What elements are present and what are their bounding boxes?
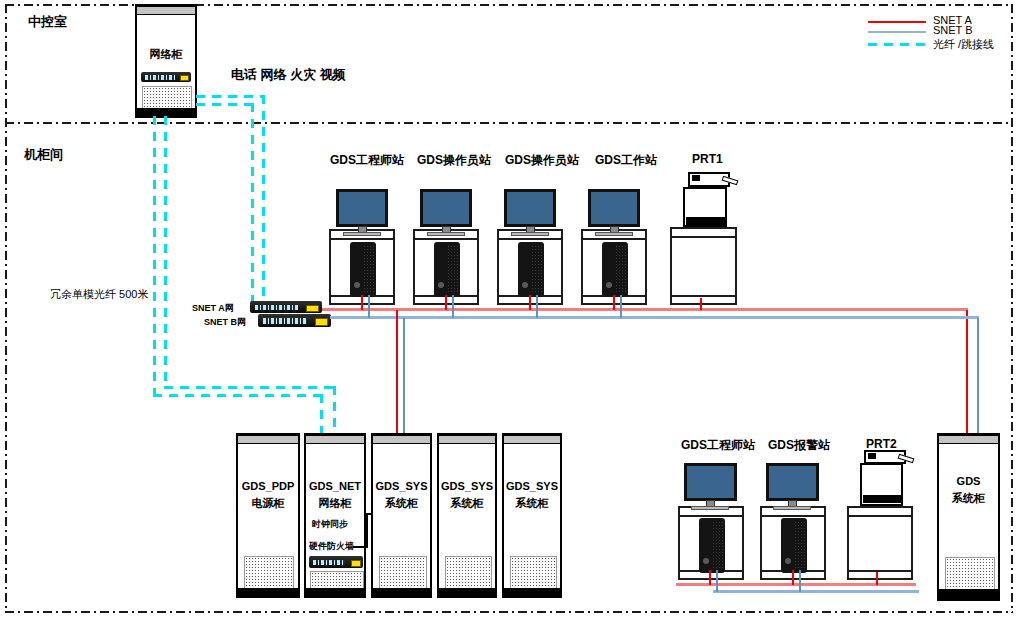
cabinet-label-line1: GDS_PDP — [242, 480, 295, 492]
snet-b-switch-label: SNET B网 — [204, 316, 246, 329]
fiber-line-segment — [153, 116, 156, 397]
cabinet-label: GDS_SYS系统柜 — [439, 478, 495, 512]
cabinet-gds-sys-3: GDS_SYS系统柜 — [502, 433, 562, 598]
legend-fiber-line — [868, 43, 926, 46]
rack-switch-device — [309, 556, 363, 568]
station-monitor — [420, 189, 472, 227]
cabinet-gds-pdp: GDS_PDP电源柜 — [236, 433, 300, 598]
station-label: GDS报警站 — [768, 437, 830, 454]
station-tower — [434, 242, 460, 297]
cabinet-top-band — [503, 435, 561, 444]
station-label: GDS操作员站 — [417, 152, 491, 169]
cabinet-gds-sys-2: GDS_SYS系统柜 — [437, 433, 497, 598]
station-label: GDS工作站 — [595, 152, 657, 169]
clock-sync-note: 时钟同步 — [312, 518, 348, 531]
legend-snet-a-line — [868, 21, 926, 23]
cabinet-label-line2: 网络柜 — [319, 497, 352, 509]
fiber-line-segment — [153, 394, 323, 397]
snet-a-drop — [709, 570, 711, 585]
cabinet-top-band — [938, 435, 999, 444]
printer-band — [686, 217, 725, 225]
snet-a-bottom-bus — [676, 583, 916, 586]
printer-band — [863, 495, 901, 503]
station-monitor — [336, 189, 388, 227]
cabinet-label: GDS系统柜 — [939, 473, 998, 507]
snet-b-switch — [258, 314, 331, 327]
snet-a-drop — [445, 295, 447, 310]
station-tower — [518, 242, 544, 297]
snet-b-drop — [536, 295, 538, 318]
snet-b-drop — [368, 295, 370, 318]
cabinet-label: GDS_SYS系统柜 — [373, 478, 430, 512]
fiber-line-segment — [333, 386, 336, 434]
station-tower — [602, 242, 628, 297]
cabinet-top-band — [136, 6, 196, 15]
cabinet-gds-sys-right: GDS系统柜 — [937, 433, 1000, 601]
cabinet-label: GDS_NET网络柜 — [306, 478, 364, 512]
prt2-drop — [876, 572, 878, 585]
station-label: GDS操作员站 — [505, 152, 579, 169]
station-tower — [781, 518, 807, 573]
cabinet-label: 网络柜 — [137, 46, 195, 63]
printer-label: PRT1 — [692, 152, 723, 166]
note-pointer-line — [353, 546, 367, 548]
snet-a-drop — [529, 295, 531, 310]
cabinet-label: GDS_PDP电源柜 — [238, 478, 298, 512]
printer-stand — [847, 506, 913, 580]
monitor-base — [427, 232, 465, 236]
fiber-line-segment — [320, 394, 323, 434]
cabinet-vent — [945, 557, 995, 591]
snet-a-drop-sys — [396, 310, 398, 434]
station-label: GDS工程师站 — [681, 437, 755, 454]
legend-fiber-label: 光纤 /跳接线 — [933, 37, 994, 52]
snet-a-drop — [792, 570, 794, 585]
cabinet-top-band — [237, 435, 299, 444]
cabinet-base — [939, 589, 998, 599]
cabinet-label-line1: GDS — [957, 475, 981, 487]
services-note: 电话 网络 火灾 视频 — [231, 66, 346, 84]
cabinet-vent — [379, 556, 427, 590]
station-monitor — [684, 463, 737, 501]
snet-a-switch-label: SNET A网 — [192, 302, 234, 315]
note-pointer-line — [366, 513, 373, 515]
station-label: GDS工程师站 — [330, 152, 404, 169]
cabinet-label-line2: 电源柜 — [252, 497, 285, 509]
cabinet-label-line2: 系统柜 — [385, 497, 418, 509]
snet-b-drop-sys — [403, 318, 405, 434]
legend-snet-b-label: SNET B — [933, 24, 973, 36]
fiber-line-segment — [164, 116, 167, 389]
cabinet-vent — [445, 556, 492, 590]
snet-a-bus-drop-right — [966, 310, 968, 434]
cabinet-base — [137, 108, 195, 116]
fiber-line-segment — [251, 103, 254, 302]
cabinet-base — [238, 588, 298, 596]
printer-stand — [670, 227, 737, 305]
cabinet-label-line2: 系统柜 — [952, 492, 985, 504]
cabinet-label-line1: GDS_NET — [309, 480, 361, 492]
printer-feeder — [688, 172, 730, 187]
snet-a-drop — [613, 295, 615, 310]
frame-bottom — [5, 611, 1013, 613]
cabinet-base — [306, 588, 364, 596]
cabinet-base — [504, 588, 560, 596]
fiber-line-segment — [196, 103, 254, 106]
control-room-network-cabinet: 网络柜 — [135, 4, 197, 118]
snet-b-bus-drop-right — [977, 318, 979, 434]
fiber-run-note: 冗余单模光纤 500米 — [50, 287, 148, 302]
cabinet-top-band — [372, 435, 431, 444]
cabinet-vent — [510, 556, 557, 590]
fiber-line-segment — [262, 95, 265, 302]
fiber-line-segment — [164, 386, 336, 389]
snet-b-drop — [799, 570, 801, 592]
snet-a-bus — [322, 308, 968, 311]
prt1-drop — [700, 298, 702, 310]
cabinet-vent — [244, 556, 294, 590]
station-monitor — [504, 189, 556, 227]
rack-switch-device — [141, 72, 191, 82]
cabinet-label-line2: 系统柜 — [451, 497, 484, 509]
station-monitor — [766, 463, 819, 501]
printer-feeder — [864, 450, 906, 464]
snet-a-switch — [250, 301, 322, 313]
snet-b-drop — [716, 570, 718, 592]
snet-b-bottom-bus — [713, 590, 919, 593]
station-tower — [350, 242, 376, 297]
monitor-base — [595, 232, 633, 236]
station-monitor — [588, 189, 640, 227]
monitor-base — [691, 506, 729, 510]
room-label-control: 中控室 — [28, 13, 67, 31]
cabinet-gds-net: GDS_NET网络柜 时钟同步 硬件防火墙 — [304, 433, 366, 598]
snet-b-drop — [452, 295, 454, 318]
cabinet-label-line1: GDS_SYS — [441, 480, 493, 492]
monitor-base — [511, 232, 549, 236]
cabinet-label-line2: 系统柜 — [516, 497, 549, 509]
frame-right — [1011, 4, 1013, 613]
snet-a-drop — [361, 295, 363, 310]
snet-b-bus — [330, 316, 979, 319]
cabinet-label-line1: GDS_SYS — [376, 480, 428, 492]
station-tower — [699, 518, 725, 573]
fiber-line-segment — [196, 95, 265, 98]
note-pointer-line — [366, 513, 368, 548]
room-divider — [5, 122, 1013, 124]
room-label-cabinet: 机柜间 — [24, 146, 63, 164]
monitor-base — [343, 232, 381, 236]
cabinet-top-band — [438, 435, 496, 444]
cabinet-gds-sys-1: GDS_SYS系统柜 — [371, 433, 432, 598]
snet-b-drop — [620, 295, 622, 318]
cabinet-base — [373, 588, 430, 596]
monitor-base — [773, 506, 811, 510]
cabinet-label-line1: GDS_SYS — [506, 480, 558, 492]
cabinet-base — [439, 588, 495, 596]
firewall-note: 硬件防火墙 — [309, 540, 354, 553]
frame-left — [5, 4, 7, 613]
cabinet-label: GDS_SYS系统柜 — [504, 478, 560, 512]
network-diagram: 中控室 机柜间 SNET A SNET B 光纤 /跳接线 网络柜 电话 网络 … — [0, 0, 1018, 619]
printer-label: PRT2 — [866, 437, 897, 451]
cabinet-top-band — [305, 435, 365, 444]
legend-snet-b-line — [868, 31, 926, 33]
